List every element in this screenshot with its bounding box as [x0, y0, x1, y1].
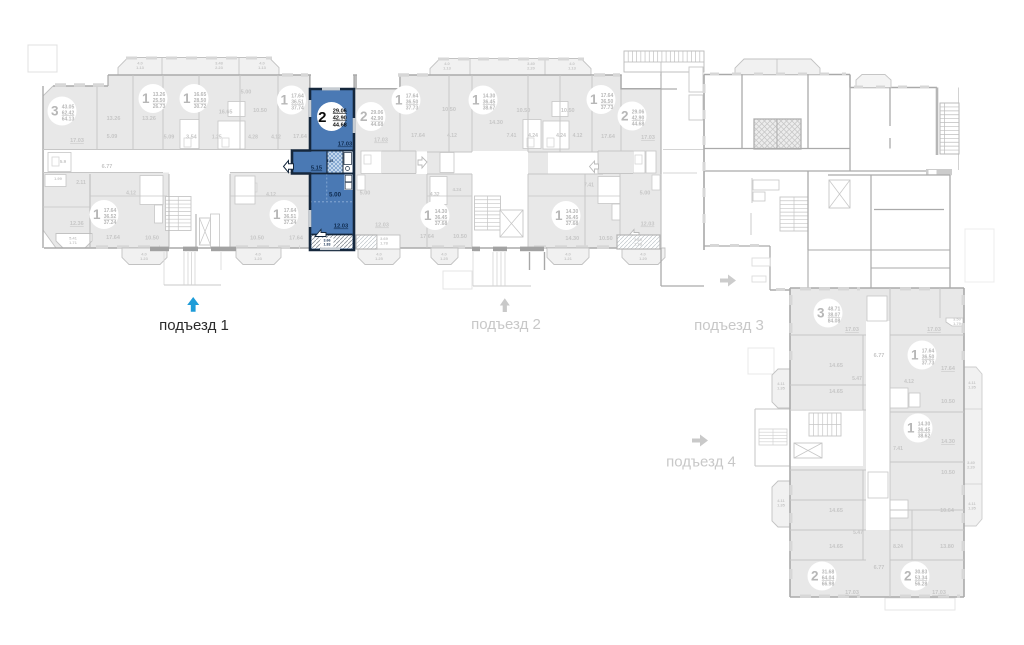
svg-text:подъезд 1: подъезд 1: [159, 317, 229, 334]
svg-text:17.03: 17.03: [641, 135, 655, 141]
svg-text:17.64: 17.64: [941, 366, 956, 372]
svg-text:4.12: 4.12: [266, 192, 276, 198]
svg-text:4.24: 4.24: [556, 133, 566, 139]
svg-text:66.98: 66.98: [822, 581, 835, 587]
svg-text:10.50: 10.50: [599, 236, 613, 242]
svg-text:7.41: 7.41: [893, 446, 903, 452]
svg-text:7.41: 7.41: [584, 183, 594, 189]
svg-text:подъезд 3: подъезд 3: [694, 317, 764, 334]
svg-text:14.65: 14.65: [829, 389, 843, 395]
svg-text:4.24: 4.24: [453, 187, 462, 192]
svg-text:12.03: 12.03: [375, 223, 389, 229]
svg-text:1: 1: [273, 207, 281, 222]
svg-text:37.68: 37.68: [566, 221, 579, 227]
svg-text:10.50: 10.50: [561, 108, 575, 114]
svg-text:17.03: 17.03: [845, 590, 859, 596]
svg-text:2: 2: [318, 109, 326, 126]
svg-text:подъезд 2: подъезд 2: [471, 316, 541, 333]
svg-text:44.68: 44.68: [333, 123, 347, 129]
svg-text:14.65: 14.65: [829, 544, 843, 550]
svg-text:17.64: 17.64: [289, 236, 304, 242]
svg-text:6.77: 6.77: [102, 164, 113, 170]
svg-text:10.50: 10.50: [941, 399, 955, 405]
svg-text:13.26: 13.26: [142, 116, 156, 122]
svg-text:1.25: 1.25: [212, 135, 222, 141]
svg-text:5.47: 5.47: [853, 530, 863, 536]
svg-text:4.12: 4.12: [271, 135, 281, 141]
svg-text:4.12: 4.12: [447, 133, 457, 139]
svg-text:14.30: 14.30: [941, 439, 955, 445]
svg-text:12.03: 12.03: [641, 222, 655, 228]
svg-text:38.67: 38.67: [483, 105, 496, 111]
svg-text:3: 3: [51, 104, 59, 119]
svg-text:56.28: 56.28: [915, 581, 928, 587]
svg-text:3: 3: [817, 306, 825, 321]
svg-text:1: 1: [555, 208, 563, 223]
svg-text:10.50: 10.50: [250, 236, 264, 242]
svg-text:2: 2: [621, 109, 629, 124]
svg-text:1: 1: [424, 208, 432, 223]
svg-text:37.74: 37.74: [291, 105, 304, 111]
svg-text:подъезд 4: подъезд 4: [666, 454, 736, 471]
svg-text:17.03: 17.03: [932, 590, 946, 596]
svg-text:2: 2: [904, 569, 912, 584]
svg-text:10.50: 10.50: [442, 107, 456, 113]
svg-text:4.28: 4.28: [248, 135, 258, 141]
svg-text:2: 2: [811, 569, 819, 584]
svg-text:13.26: 13.26: [107, 116, 121, 122]
svg-text:1: 1: [911, 348, 919, 363]
svg-text:1.35: 1.35: [968, 384, 977, 389]
svg-text:17.03: 17.03: [374, 138, 388, 144]
svg-text:1: 1: [281, 93, 289, 108]
svg-text:5.00: 5.00: [241, 90, 252, 96]
svg-text:1.25: 1.25: [375, 256, 384, 261]
svg-text:84.08: 84.08: [828, 318, 841, 324]
svg-text:1.92: 1.92: [327, 159, 334, 163]
svg-text:1: 1: [590, 92, 598, 107]
svg-text:10.50: 10.50: [517, 108, 531, 114]
svg-text:42.90: 42.90: [333, 116, 347, 122]
svg-text:2: 2: [360, 109, 368, 124]
svg-text:1.13: 1.13: [136, 65, 145, 70]
svg-text:17.64: 17.64: [601, 134, 616, 140]
svg-text:1.23: 1.23: [140, 256, 149, 261]
svg-text:37.73: 37.73: [922, 360, 935, 366]
svg-text:5.09: 5.09: [164, 135, 175, 141]
svg-text:1.13: 1.13: [258, 65, 267, 70]
svg-text:5.47: 5.47: [852, 376, 862, 382]
svg-text:17.03: 17.03: [845, 327, 859, 333]
svg-text:12.03: 12.03: [334, 224, 349, 230]
svg-text:1.35: 1.35: [968, 505, 977, 510]
svg-text:17.64: 17.64: [411, 133, 426, 139]
svg-text:10.64: 10.64: [940, 508, 955, 514]
svg-text:12.36: 12.36: [70, 221, 84, 227]
svg-text:1.35: 1.35: [777, 385, 786, 390]
svg-text:44.68: 44.68: [371, 122, 384, 128]
svg-text:14.65: 14.65: [829, 363, 843, 369]
svg-text:1.78: 1.78: [634, 241, 643, 246]
svg-text:1: 1: [183, 91, 191, 106]
svg-text:10.50: 10.50: [941, 470, 955, 476]
svg-text:10.50: 10.50: [145, 236, 159, 242]
svg-text:1.99: 1.99: [54, 176, 63, 181]
svg-text:5.00: 5.00: [329, 192, 342, 199]
svg-text:1.71: 1.71: [69, 240, 78, 245]
svg-text:1.79: 1.79: [953, 321, 962, 326]
svg-text:3.54: 3.54: [186, 135, 198, 141]
svg-text:17.03: 17.03: [338, 142, 353, 148]
svg-text:2.20: 2.20: [527, 65, 536, 70]
svg-text:1: 1: [395, 93, 403, 108]
svg-text:1: 1: [472, 93, 480, 108]
svg-text:5.09: 5.09: [107, 134, 118, 140]
svg-text:26.73: 26.73: [153, 104, 166, 110]
svg-text:1: 1: [93, 207, 101, 222]
svg-text:10.50: 10.50: [253, 108, 267, 114]
svg-text:37.73: 37.73: [406, 105, 419, 111]
svg-text:1.78: 1.78: [380, 240, 389, 245]
svg-text:1.25: 1.25: [440, 256, 449, 261]
svg-text:38.62: 38.62: [918, 433, 931, 439]
svg-text:5.00: 5.00: [360, 191, 371, 197]
svg-text:37.24: 37.24: [284, 220, 297, 226]
svg-text:6.77: 6.77: [874, 565, 885, 571]
svg-text:10.50: 10.50: [453, 234, 467, 240]
svg-text:1.35: 1.35: [777, 502, 786, 507]
svg-text:14.65: 14.65: [829, 508, 843, 514]
svg-text:17.64: 17.64: [293, 134, 308, 140]
svg-text:1.20: 1.20: [639, 256, 648, 261]
svg-text:4.24: 4.24: [528, 133, 538, 139]
svg-text:1.83: 1.83: [324, 243, 331, 247]
svg-text:14.30: 14.30: [489, 120, 503, 126]
svg-text:37.24: 37.24: [104, 220, 117, 226]
svg-text:2.11: 2.11: [76, 180, 86, 186]
svg-text:17.03: 17.03: [70, 138, 84, 144]
svg-text:1.23: 1.23: [254, 256, 263, 261]
svg-text:1.21: 1.21: [564, 256, 573, 261]
svg-text:17.64: 17.64: [106, 235, 121, 241]
svg-text:7.41: 7.41: [507, 133, 517, 139]
svg-text:4.32: 4.32: [430, 192, 440, 198]
svg-text:64.13: 64.13: [62, 116, 75, 122]
svg-text:1: 1: [907, 421, 915, 436]
svg-text:37.73: 37.73: [601, 105, 614, 111]
svg-text:5.9: 5.9: [60, 159, 67, 164]
svg-text:2.20: 2.20: [967, 464, 976, 469]
svg-text:29.06: 29.06: [333, 108, 347, 114]
svg-text:37.68: 37.68: [435, 221, 448, 227]
svg-text:13.80: 13.80: [940, 544, 954, 550]
svg-text:1.13: 1.13: [568, 65, 577, 70]
svg-text:4.12: 4.12: [126, 191, 136, 197]
svg-text:30.72: 30.72: [194, 104, 207, 110]
svg-text:17.03: 17.03: [927, 327, 941, 333]
svg-text:14.30: 14.30: [565, 236, 579, 242]
svg-text:16.65: 16.65: [219, 110, 233, 116]
svg-text:1: 1: [142, 91, 150, 106]
svg-text:44.68: 44.68: [632, 121, 645, 127]
svg-text:5.15: 5.15: [311, 166, 323, 172]
svg-text:17.64: 17.64: [420, 234, 435, 240]
svg-text:5.00: 5.00: [640, 191, 651, 197]
svg-text:8.24: 8.24: [893, 544, 903, 550]
svg-text:6.77: 6.77: [874, 353, 885, 359]
svg-text:1.13: 1.13: [443, 65, 452, 70]
svg-text:4.12: 4.12: [573, 133, 583, 139]
svg-text:2.23: 2.23: [215, 65, 224, 70]
svg-text:4.12: 4.12: [904, 379, 914, 385]
